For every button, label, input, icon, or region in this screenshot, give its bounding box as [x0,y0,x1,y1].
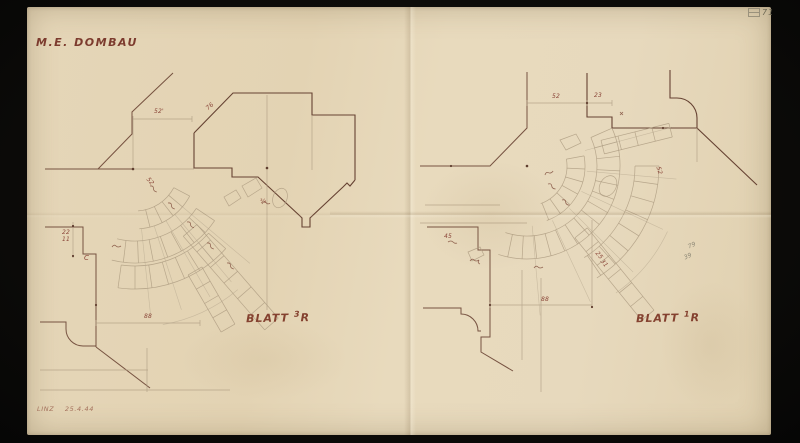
left-drawing [40,73,355,392]
dim-annotation: 52' [154,108,164,115]
date-note: LINZ 25.4.44 [37,405,94,413]
scanned-drawing-sheet: M.E. DOMBAU BLATT 3R BLATT 1R LINZ 25.4.… [0,0,800,443]
dim-annotation: C [84,254,89,262]
right-upper-profile [420,72,527,166]
fan-line [631,196,654,203]
dim-annotation: 88 [144,313,152,320]
fan-line [149,265,152,288]
fan-line [213,310,227,318]
right-label-word: BLATT [636,311,679,325]
dim-annotation: 22 [62,229,70,236]
fan-line [183,225,197,237]
dim-annotation: 11 [62,236,70,243]
left-block-outline [194,93,355,227]
left-label-word: BLATT [246,311,289,325]
fan-line [566,156,584,159]
fan-line [163,290,238,325]
fan-line [562,185,578,194]
fan-line [669,123,672,137]
fan-line [619,283,631,293]
fan-line [635,132,638,146]
fan-line [118,249,226,289]
fan-line [174,188,190,196]
fan-line [183,207,250,264]
fan-line [591,128,612,137]
fan-line [567,168,585,169]
left-label-letter: R [300,311,310,324]
dim-annotation: 88 [541,296,549,303]
left-construction-lines [40,95,312,392]
fan-line [123,240,126,262]
archive-stamp-mark-icon [748,8,760,17]
right-drawing [420,70,757,392]
fan-line [138,241,139,263]
left-sheet-label: BLATT 3R [246,309,310,325]
fan-line [575,228,587,238]
fan-line [596,181,619,186]
fan-line [498,128,620,259]
fan-line [541,159,567,204]
fan-line [597,156,620,158]
fan-line [619,223,639,236]
dim-annotation: 23 [594,92,602,99]
fan-line [542,203,549,220]
fan-line [169,195,183,207]
fan-line [581,191,663,229]
fan-line [585,127,672,150]
fan-line [557,193,570,205]
fan-line [205,296,219,304]
fan-line [601,140,604,154]
right-template-shapes [468,134,581,261]
fan-line [505,138,597,237]
dim-annotation: 52 [552,93,560,100]
fan-line [556,230,565,251]
fan-line [566,177,583,182]
left-node-dots [72,167,268,306]
fan-line [634,181,658,184]
fan-line [631,296,643,306]
fan-line [545,234,551,256]
fan-line [197,240,211,252]
right-label-letter: R [690,311,700,324]
fan-line [118,265,121,288]
left-template-shapes [224,178,262,206]
fan-line [154,207,162,223]
fan-line [188,267,202,275]
fan-line [146,210,150,228]
fan-line [154,226,181,310]
sheet-title: M.E. DOMBAU [36,36,138,49]
fan-line [652,128,655,142]
fan-line [238,287,252,299]
fan-line [138,188,174,211]
fan-line [522,236,523,259]
left-upper-profile [45,73,173,169]
right-cavetto-molding [423,308,481,331]
fan-line [588,201,608,213]
archive-stamp: 71 [748,8,774,17]
fan-line [550,199,560,214]
fan-line [508,235,513,258]
fan-line [221,324,235,332]
fan-line [608,269,620,279]
dim-annotation: ¾ [260,198,266,205]
dim-annotation: 45 [444,233,452,240]
fan-line [565,225,578,244]
right-voussoir-fan [498,123,676,320]
fan-line [171,232,182,251]
fan-line [597,170,620,171]
fan-line [552,220,590,302]
right-step-profile [427,227,513,371]
fan-line [175,257,184,278]
right-construction-lines [420,100,697,392]
fan-line [181,225,195,242]
right-sheet-label: BLATT 1R [636,309,700,325]
technical-drawing-canvas [0,0,800,443]
right-block-outline [587,70,757,185]
fan-line [626,210,648,220]
fan-line [610,235,628,250]
left-base-diagonal [96,347,150,388]
fan-line [196,208,214,220]
right-template-oval [596,172,621,199]
fan-line [162,262,168,284]
fan-line [160,237,168,258]
fan-line [175,215,232,282]
left-cavetto-molding [40,322,96,346]
fan-line [149,240,153,262]
left-step-profile [45,227,96,347]
archive-number: 71 [762,8,774,17]
fan-line [581,210,599,224]
fan-line [532,226,540,316]
fan-line [196,281,210,289]
